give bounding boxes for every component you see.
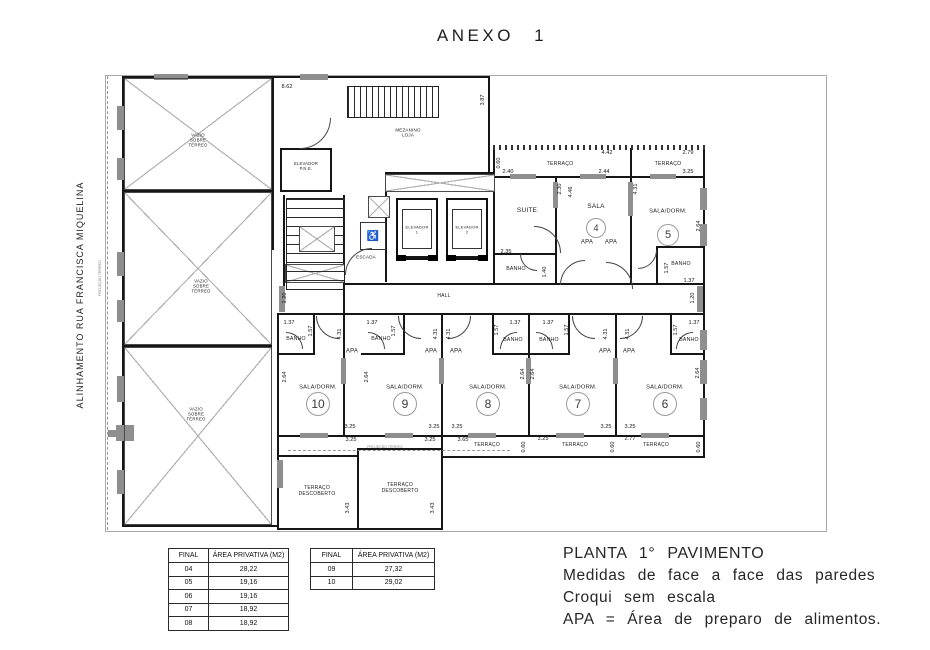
room-label-sala-dorm-9: SALA/DORM. xyxy=(386,385,424,392)
wall-segment xyxy=(279,455,357,457)
elevator-sill xyxy=(478,255,488,261)
masonry-block xyxy=(300,433,328,438)
dimension-label: 0.60 xyxy=(696,442,702,453)
room-label-apa: APA xyxy=(581,239,593,246)
dimension-label: 4.31 xyxy=(433,329,439,340)
masonry-block xyxy=(385,433,413,438)
terrace-hatch-edge xyxy=(493,145,705,150)
door-swing-arc xyxy=(316,316,339,339)
dimension-label: 4.46 xyxy=(568,187,574,198)
dimension-label: 3.25 xyxy=(345,424,356,430)
unit-number-5: 5 xyxy=(657,224,679,246)
room-label-banho-suite: BANHO xyxy=(506,266,525,272)
area-table-2: FINALÁREA PRIVATIVA (M2)0927,321029,02 xyxy=(310,548,435,590)
dimension-label: 3.87 xyxy=(480,95,486,106)
dimension-label: 1.37 xyxy=(510,320,521,326)
room-label-banho-5: BANHO xyxy=(671,261,690,267)
room-label-apa: APA xyxy=(346,348,358,355)
room-label-terraco-descoberto-9: TERRAÇO DESCOBERTO xyxy=(382,483,419,495)
dimension-label: 1.57 xyxy=(673,325,679,336)
unit-number-6: 6 xyxy=(653,392,677,416)
dimension-label: 1.57 xyxy=(391,326,397,337)
room-label-mezanino-loja: MEZANINO LOJA xyxy=(395,128,420,139)
door-swing-arc xyxy=(345,248,372,275)
area-table-cell: 05 xyxy=(169,576,209,590)
table-row: 0718,92 xyxy=(169,603,289,617)
masonry-block xyxy=(300,74,328,80)
table-row: 0619,16 xyxy=(169,590,289,604)
area-table-cell: 29,02 xyxy=(353,576,435,590)
wall-segment xyxy=(280,148,282,192)
door-swing-arc xyxy=(398,316,421,339)
wall-segment xyxy=(443,456,705,458)
masonry-block xyxy=(117,376,124,402)
wall-segment xyxy=(492,353,532,355)
masonry-block xyxy=(117,252,124,276)
wall-segment xyxy=(330,148,332,192)
wall-segment xyxy=(280,190,332,192)
area-table-cell: 04 xyxy=(169,563,209,577)
door-swing-arc xyxy=(300,118,331,149)
room-label-sala-dorm-8: SALA/DORM. xyxy=(469,385,507,392)
room-label-apa: APA xyxy=(450,348,462,355)
wall-segment xyxy=(441,313,443,530)
dimension-label: 2.64 xyxy=(282,372,288,383)
drawing-page: ANEXO 1 ALINHAMENTO RUA FRANCISCA MIQUEL… xyxy=(0,0,930,650)
legend-apa-note: APA = Área de preparo de alimentos. xyxy=(563,611,881,629)
elevator-sill xyxy=(428,255,438,261)
legend-scale-note: Croqui sem escala xyxy=(563,589,716,607)
door-swing-arc xyxy=(572,316,595,339)
wall-segment xyxy=(630,148,632,285)
elevator-sill xyxy=(446,255,456,261)
dimension-label: 1.37 xyxy=(684,278,695,284)
table-row: 0818,92 xyxy=(169,617,289,631)
wall-segment xyxy=(361,353,405,355)
dimension-label: 2.30 xyxy=(557,184,563,195)
masonry-block xyxy=(700,360,707,384)
room-label-banho-10: BANHO xyxy=(286,336,305,342)
dimension-label: 0.60 xyxy=(496,158,502,169)
elevator-sill xyxy=(396,255,406,261)
room-label-terraco-5: TERRAÇO xyxy=(655,161,682,167)
unit-number-8: 8 xyxy=(476,392,500,416)
dimension-label: 2.79 xyxy=(683,150,694,156)
masonry-block xyxy=(341,358,346,384)
room-label-terraco-8: TERRAÇO xyxy=(474,443,500,449)
room-label-terraco-4: TERRAÇO xyxy=(547,161,574,167)
area-table-cell: 18,92 xyxy=(209,617,289,631)
room-label-escada: ESCADA xyxy=(356,254,376,259)
room-label-vazio-3: VAZIO SOBRE TÉRREO xyxy=(186,406,205,421)
area-table-1: FINALÁREA PRIVATIVA (M2)0428,220519,1606… xyxy=(168,548,289,631)
wall-segment xyxy=(277,313,705,315)
wall-segment xyxy=(357,448,359,530)
door-swing-arc xyxy=(560,260,585,285)
dimension-label: 1.37 xyxy=(367,320,378,326)
room-label-elevador-pne: ELEVADOR P.N.E. xyxy=(294,162,318,172)
masonry-block xyxy=(700,330,707,350)
table-row: 0927,32 xyxy=(311,563,435,577)
area-table-header-cell: FINAL xyxy=(169,549,209,563)
mezzanine-stair xyxy=(347,86,439,118)
dimension-label: 3.25 xyxy=(625,424,636,430)
area-table-cell: 19,16 xyxy=(209,576,289,590)
wall-segment xyxy=(488,76,490,178)
dimension-label: 1.37 xyxy=(689,320,700,326)
room-label-apa: APA xyxy=(425,348,437,355)
room-label-terraco-7: TERRAÇO xyxy=(562,443,588,449)
area-table-cell: 06 xyxy=(169,590,209,604)
area-table-header-cell: ÁREA PRIVATIVA (M2) xyxy=(353,549,435,563)
room-label-vazio-1: VAZIO SOBRE TÉRREO xyxy=(188,132,207,147)
legend-plan-title: PLANTA 1° PAVIMENTO xyxy=(563,545,764,563)
dimension-label: 3.25 xyxy=(452,424,463,430)
dimension-label: 2.35 xyxy=(501,249,512,255)
dimension-label: 1.20 xyxy=(690,293,696,304)
wall-segment xyxy=(277,528,443,530)
dimension-label: 3.25 xyxy=(429,424,440,430)
area-table-header-cell: FINAL xyxy=(311,549,353,563)
dimension-label: 2.64 xyxy=(364,372,370,383)
dimension-label: 4.31 xyxy=(446,329,452,340)
masonry-block xyxy=(556,433,584,438)
masonry-block xyxy=(700,188,707,210)
room-label-apa: APA xyxy=(599,348,611,355)
room-label-hall: HALL xyxy=(437,294,450,300)
dimension-label: 2.64 xyxy=(520,369,526,380)
masonry-block xyxy=(117,470,124,494)
table-row: 0519,16 xyxy=(169,576,289,590)
void-x-box xyxy=(385,174,495,192)
door-swing-arc xyxy=(606,262,633,289)
dimension-label: 1.40 xyxy=(542,267,548,278)
room-label-elevador-2: ELEVADOR 2 xyxy=(455,225,478,234)
area-table-cell: 09 xyxy=(311,563,353,577)
dimension-label: 4.31 xyxy=(633,184,639,195)
masonry-block xyxy=(439,358,444,384)
dimension-label: 0.60 xyxy=(521,442,527,453)
masonry-block xyxy=(613,358,618,384)
room-label-banho-6: BANHO xyxy=(679,337,698,343)
room-label-apa: APA xyxy=(623,348,635,355)
dimension-label: 1.57 xyxy=(664,263,670,274)
void-x-box xyxy=(368,196,390,218)
void-x-box xyxy=(124,347,272,525)
room-label-apa: APA xyxy=(605,239,617,246)
masonry-block xyxy=(700,398,707,420)
masonry-block xyxy=(641,433,669,438)
ground-projection-line xyxy=(288,450,510,451)
door-swing-arc xyxy=(638,250,657,269)
dimension-label: 8.62 xyxy=(282,84,293,90)
area-table-cell: 27,32 xyxy=(353,563,435,577)
dimension-label: 1.57 xyxy=(308,326,314,337)
dimension-label: 1.57 xyxy=(494,325,500,336)
wall-segment xyxy=(277,313,279,530)
room-label-sala-dorm-6: SALA/DORM. xyxy=(646,385,684,392)
masonry-block xyxy=(468,433,496,438)
wall-segment xyxy=(656,246,705,248)
masonry-block xyxy=(117,158,124,180)
room-label-terraco-6: TERRAÇO xyxy=(643,443,669,449)
legend-measures-note: Medidas de face a face das paredes xyxy=(563,567,875,585)
dimension-label: 4.31 xyxy=(337,329,343,340)
table-row: 0428,22 xyxy=(169,563,289,577)
room-label-sala-4: SALA xyxy=(587,203,604,211)
projection-note: PROJEÇÃO TÉRREO xyxy=(367,445,403,449)
masonry-block xyxy=(277,460,283,488)
room-label-suite: SUITE xyxy=(517,207,537,215)
dimension-label: 3.65 xyxy=(458,437,469,443)
masonry-block xyxy=(650,174,676,179)
room-label-banho-9: BANHO xyxy=(371,336,390,342)
area-table-header-cell: ÁREA PRIVATIVA (M2) xyxy=(209,549,289,563)
dimension-label: 1.37 xyxy=(284,320,295,326)
wall-segment xyxy=(122,525,279,527)
stair-core-x-box xyxy=(299,226,335,252)
unit-number-4: 4 xyxy=(586,218,606,238)
wall-segment xyxy=(530,353,570,355)
room-label-terraco-descoberto-10: TERRAÇO DESCOBERTO xyxy=(299,486,336,498)
wall-segment xyxy=(493,148,495,285)
dimension-label: 2.77 xyxy=(625,436,636,442)
dimension-label: 2.44 xyxy=(599,169,610,175)
area-table-cell: 19,16 xyxy=(209,590,289,604)
unit-number-10: 10 xyxy=(306,392,330,416)
dimension-label: 3.43 xyxy=(345,503,351,514)
wall-segment xyxy=(670,353,705,355)
dimension-label: 3.25 xyxy=(538,436,549,442)
room-label-sala-dorm-10: SALA/DORM. xyxy=(299,385,337,392)
area-table-cell: 07 xyxy=(169,603,209,617)
room-label-sala-dorm-5: SALA/DORM. xyxy=(649,209,687,216)
dimension-label: 4.31 xyxy=(625,329,631,340)
wall-segment xyxy=(345,283,705,285)
room-label-elevador-1: ELEVADOR 1 xyxy=(405,225,428,234)
room-label-sala-dorm-7: SALA/DORM. xyxy=(559,385,597,392)
dimension-label: 1.20 xyxy=(282,293,288,304)
wheelchair-icon: ♿ xyxy=(360,222,386,250)
dimension-label: 2.40 xyxy=(503,169,514,175)
dimension-label: 3.25 xyxy=(425,437,436,443)
area-table-cell: 08 xyxy=(169,617,209,631)
masonry-block xyxy=(697,286,703,312)
dimension-label: 4.42 xyxy=(602,150,613,156)
wall-segment xyxy=(279,353,315,355)
room-label-vazio-2: VAZIO SOBRE TÉRREO xyxy=(191,278,210,293)
dimension-label: 1.57 xyxy=(564,325,570,336)
area-table-cell: 18,92 xyxy=(209,603,289,617)
dimension-label: 3.25 xyxy=(683,169,694,175)
dimension-label: 0.60 xyxy=(610,442,616,453)
wall-segment xyxy=(272,76,274,250)
dimension-label: 4.31 xyxy=(603,329,609,340)
dimension-label: 3.25 xyxy=(346,437,357,443)
area-table-cell: 10 xyxy=(311,576,353,590)
dimension-label: 2.64 xyxy=(530,369,536,380)
room-label-banho-8: BANHO xyxy=(503,337,522,343)
room-label-banho-7: BANHO xyxy=(539,337,558,343)
door-swing-arc xyxy=(620,316,643,339)
table-row: 1029,02 xyxy=(311,576,435,590)
area-table-cell: 28,22 xyxy=(209,563,289,577)
unit-number-7: 7 xyxy=(566,392,590,416)
unit-number-9: 9 xyxy=(393,392,417,416)
dimension-label: 2.64 xyxy=(695,368,701,379)
dimension-label: 1.37 xyxy=(543,320,554,326)
masonry-block xyxy=(117,300,124,322)
masonry-block xyxy=(108,430,116,437)
wall-segment xyxy=(670,315,672,355)
masonry-block xyxy=(510,174,536,179)
dimension-label: 3.25 xyxy=(601,424,612,430)
masonry-block xyxy=(117,106,124,130)
dimension-label: 3.43 xyxy=(430,503,436,514)
floor-plan: ♿PROJEÇÃO TÉRREOVAZIO SOBRE TÉRREOVAZIO … xyxy=(0,0,930,650)
void-x-box xyxy=(124,192,272,345)
dimension-label: 2.64 xyxy=(696,221,702,232)
